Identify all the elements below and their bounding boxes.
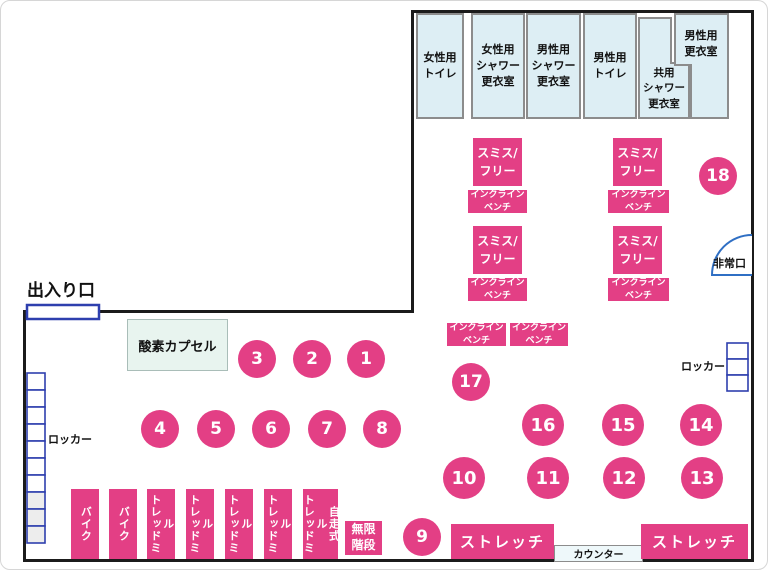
station-circle-16: 16 (522, 404, 564, 446)
smith-free-station: スミス/ フリー (473, 226, 522, 274)
station-circle-1: 1 (347, 340, 385, 378)
incline-bench: インクライン ベンチ (468, 190, 527, 213)
locker-label-left: ロッカー (48, 431, 92, 447)
machine-label: バイク (79, 506, 92, 542)
bike-machine: バイク (109, 489, 137, 559)
incline-bench: インクライン ベンチ (608, 278, 669, 301)
station-circle-8: 8 (363, 410, 401, 448)
station-circle-14: 14 (680, 404, 722, 446)
machine-label: トレッドミル 自走式 (302, 489, 340, 559)
machine-label: バイク (117, 506, 130, 542)
station-circle-4: 4 (141, 410, 179, 448)
incline-bench: インクライン ベンチ (468, 278, 527, 301)
stretch-area: ストレッチ (451, 524, 554, 559)
room-label-womens-toilet: 女性用 トイレ (417, 14, 463, 118)
incline-bench: インクライン ベンチ (510, 323, 568, 346)
locker-right-grid (727, 343, 748, 391)
gym-floor-map: 女性用 トイレ 女性用 シャワー 更衣室 男性用 シャワー 更衣室 男性用 トイ… (0, 0, 768, 570)
machine-label: トレッドミル (226, 489, 251, 559)
smith-free-station: スミス/ フリー (473, 138, 522, 186)
infinite-stairs-box: 無限 階段 (345, 521, 382, 555)
locker-label-right: ロッカー (681, 358, 725, 374)
station-circle-12: 12 (603, 457, 645, 499)
incline-bench: インクライン ベンチ (608, 190, 669, 213)
station-circle-2: 2 (293, 340, 331, 378)
station-circle-9: 9 (403, 518, 441, 556)
machine-label: トレッドミル (148, 489, 173, 559)
room-label-womens-shower: 女性用 シャワー 更衣室 (472, 14, 524, 118)
entrance-label: 出入り口 (27, 276, 95, 301)
treadmill-machine: トレッドミル (147, 489, 175, 559)
oxygen-capsule-box: 酸素カプセル (127, 319, 228, 371)
room-label-mens-locker-room: 男性用 更衣室 (677, 23, 725, 65)
station-circle-13: 13 (681, 457, 723, 499)
room-label-mens-shower: 男性用 シャワー 更衣室 (527, 14, 580, 118)
entrance-door-shape (27, 305, 99, 319)
station-circle-6: 6 (252, 410, 290, 448)
room-label-mens-toilet: 男性用 トイレ (584, 14, 636, 118)
treadmill-machine: トレッドミル (225, 489, 253, 559)
station-circle-10: 10 (443, 457, 485, 499)
room-label-shared-shower: 共用 シャワー 更衣室 (639, 61, 689, 117)
station-circle-11: 11 (527, 457, 569, 499)
bike-machine: バイク (71, 489, 99, 559)
machine-label: トレッドミル (265, 489, 290, 559)
treadmill-self-propelled-machine: トレッドミル 自走式 (303, 489, 338, 559)
station-circle-3: 3 (238, 340, 276, 378)
treadmill-machine: トレッドミル (186, 489, 214, 559)
stretch-area: ストレッチ (641, 524, 748, 559)
smith-free-station: スミス/ フリー (613, 138, 662, 186)
treadmill-machine: トレッドミル (264, 489, 292, 559)
counter-box: カウンター (554, 545, 643, 562)
incline-bench: インクライン ベンチ (447, 323, 506, 346)
emergency-exit-label: 非常口 (713, 255, 746, 271)
machine-label: トレッドミル (187, 489, 212, 559)
locker-left-grid (27, 373, 45, 543)
station-circle-18: 18 (699, 157, 737, 195)
station-circle-17: 17 (452, 363, 490, 401)
station-circle-5: 5 (197, 410, 235, 448)
station-circle-7: 7 (308, 410, 346, 448)
station-circle-15: 15 (602, 404, 644, 446)
smith-free-station: スミス/ フリー (613, 226, 662, 274)
